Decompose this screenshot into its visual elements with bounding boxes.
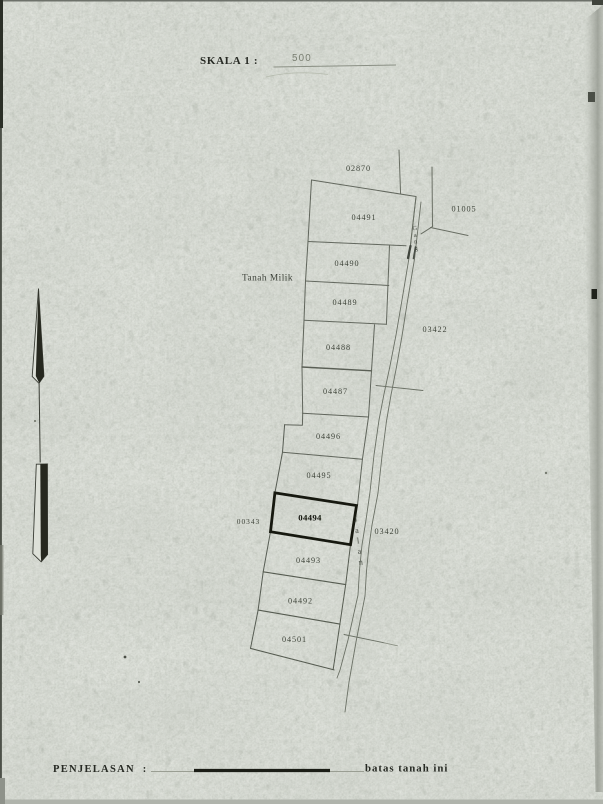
svg-text:00343: 00343 (237, 517, 260, 526)
svg-text:01005: 01005 (452, 205, 477, 214)
svg-text:batas tanah ini: batas tanah ini (365, 763, 448, 775)
svg-text:04493: 04493 (296, 556, 321, 565)
svg-text:04496: 04496 (316, 432, 341, 441)
svg-text:04494: 04494 (298, 513, 322, 523)
svg-text:04501: 04501 (282, 635, 307, 644)
svg-text:04495: 04495 (307, 471, 332, 480)
svg-text:03420: 03420 (375, 527, 400, 536)
svg-text:Tanah Milik: Tanah Milik (242, 274, 293, 284)
svg-text:04491: 04491 (352, 213, 377, 222)
svg-text:03422: 03422 (423, 325, 448, 334)
svg-text:SKALA 1 :: SKALA 1 : (200, 55, 258, 67)
svg-text:04489: 04489 (333, 298, 358, 307)
svg-text:04490: 04490 (335, 259, 360, 268)
svg-text:PENJELASAN :: PENJELASAN : (53, 764, 148, 775)
svg-text:02870: 02870 (346, 164, 371, 173)
svg-text:04492: 04492 (288, 596, 313, 605)
svg-text:500: 500 (292, 53, 312, 64)
svg-text:04488: 04488 (326, 343, 351, 352)
svg-text:04487: 04487 (323, 387, 348, 396)
